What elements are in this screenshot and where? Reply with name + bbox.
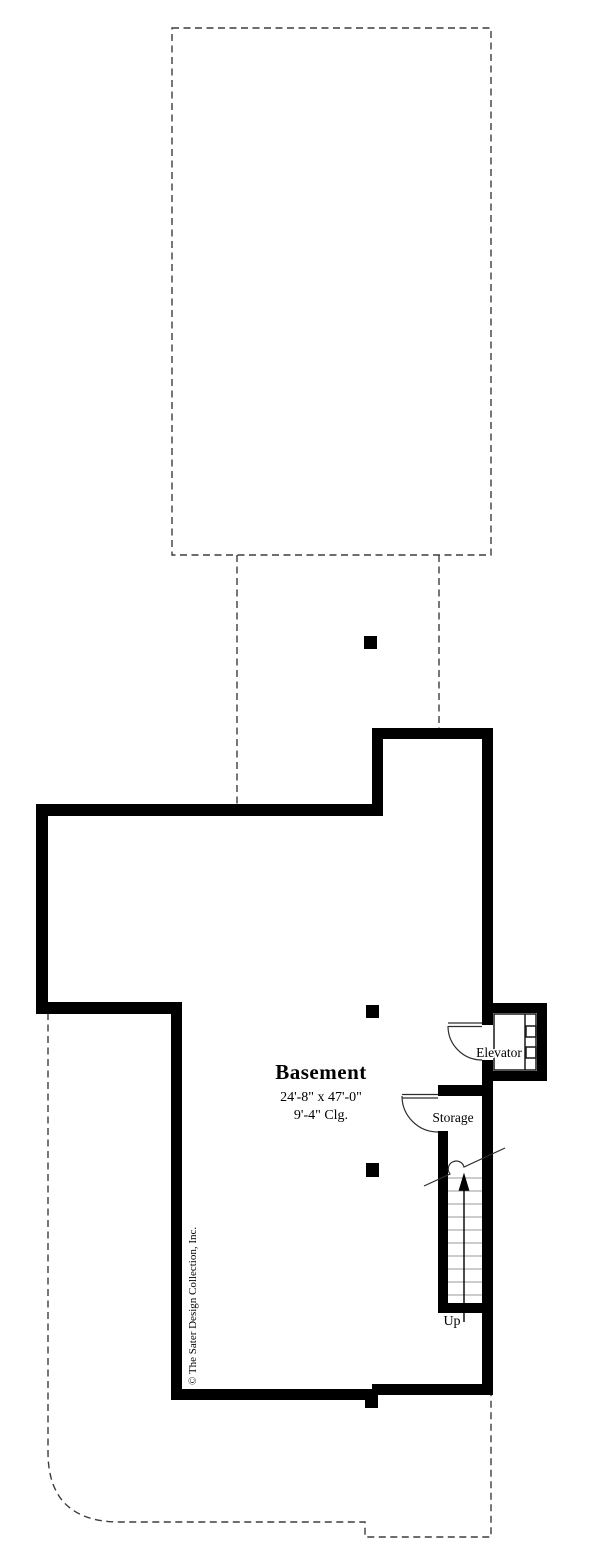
arrow-base-dot [461,1305,466,1310]
wall-connector-vertical [372,728,383,816]
wall-bottom-left [171,1389,378,1400]
stairs-up-label: Up [443,1314,460,1329]
upper-floor-outline [172,28,491,555]
arrow-head [460,1175,469,1190]
floor-plan-svg: Basement 24'-8" x 47'-0" 9'-4" Clg. Elev… [0,0,600,1558]
elevator-label: Elevator [476,1045,522,1060]
floor-plan-page: Basement 24'-8" x 47'-0" 9'-4" Clg. Elev… [0,0,600,1558]
lower-terrace-outline [48,1013,491,1537]
elevator-shaft-outline [494,1014,536,1070]
wall-bottom-right [372,1384,493,1395]
elevator-shaft [494,1014,536,1070]
wall-stair-bottom [438,1303,483,1313]
wall-step-vertical [171,1002,182,1400]
wall-top-left [36,804,383,816]
elevator-rail-bottom [526,1047,536,1058]
wall-stair-left [438,1131,448,1313]
wall-elevator-bottom [482,1071,547,1081]
dashed-outlines [48,28,491,1537]
wall-right-upper [482,728,493,1025]
ceiling-height: 9'-4" Clg. [294,1108,348,1123]
wall-right-lower [482,1060,493,1395]
column-post-lower [366,1163,379,1177]
wall-left [36,804,48,1014]
wall-left-step-bottom [36,1002,182,1014]
column-post-upper [364,636,377,649]
copyright-notice: © The Sater Design Collection, Inc. [187,1227,199,1385]
room-title: Basement [275,1060,367,1084]
storage-label: Storage [432,1110,473,1125]
room-dimensions: 24'-8" x 47'-0" [280,1090,362,1105]
elevator-rail-top [526,1026,536,1037]
stair-direction-arrow [460,1175,469,1322]
wall-storage-top [438,1085,493,1096]
wall-elevator-right [537,1003,547,1081]
columns [364,636,379,1177]
wall-top-right [372,728,493,739]
stair-treads [448,1178,482,1295]
column-post-middle [366,1005,379,1018]
